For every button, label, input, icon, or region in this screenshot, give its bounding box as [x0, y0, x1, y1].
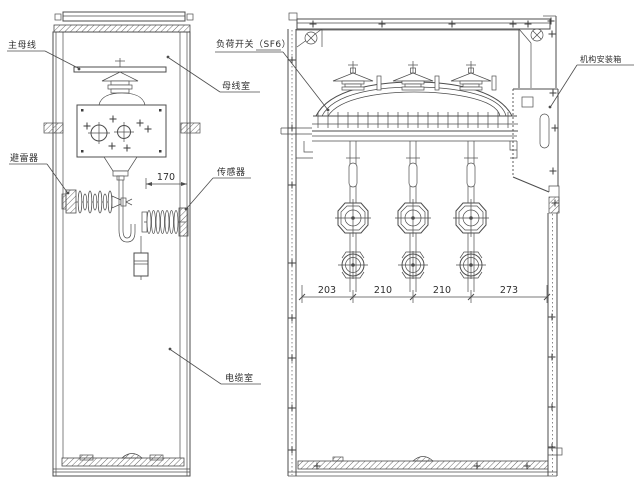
cabinet-base: [53, 454, 190, 473]
load-switch-text: 负荷开关（SF6）: [216, 38, 291, 50]
cable-terminations: [335, 141, 489, 292]
top-left-bracket: [297, 29, 322, 47]
sensor-coil: [142, 208, 188, 236]
connecting-pipe: [119, 176, 141, 253]
dimension-line: 203 210 210 273: [299, 285, 550, 303]
label-mechanism-box: 机构安装箱: [549, 54, 634, 108]
termination-phase-b: [395, 141, 431, 292]
fuse-box: [134, 253, 148, 280]
label-sensor: 传感器: [185, 166, 251, 210]
funnel: [104, 157, 137, 180]
busbar: [74, 67, 166, 72]
label-load-switch: 负荷开关（SF6）: [215, 38, 329, 111]
bushing-phase-a: [333, 61, 373, 90]
mechanism-mounting-plate: [513, 89, 559, 213]
busbar-compartment-text: 母线室: [222, 80, 251, 92]
mechanism-box: [77, 105, 166, 157]
cable-gland-bump: [122, 454, 142, 459]
cable-gland-bump: [413, 457, 433, 462]
arrester-text: 避雷器: [10, 152, 39, 164]
label-busbar-compartment: 母线室: [167, 56, 260, 92]
side-view: 170: [44, 12, 200, 476]
front-view: 203 210 210 273: [281, 13, 562, 476]
dim-203-text: 203: [318, 285, 336, 296]
top-cover: [54, 12, 193, 32]
dim-210-text: 210: [374, 285, 392, 296]
switchgear-drawing-canvas: 170: [0, 0, 640, 481]
wall-mounting-tab: [44, 123, 63, 133]
cabinet-base: [288, 457, 557, 477]
slot-hole: [540, 114, 549, 148]
bushings: [333, 61, 496, 90]
sf6-tank: [281, 82, 518, 158]
technical-drawing: 170: [0, 0, 640, 481]
dim-210b-text: 210: [433, 285, 451, 296]
termination-phase-c: [453, 141, 489, 292]
square-hole: [522, 97, 533, 107]
label-arrester: 避雷器: [9, 152, 69, 194]
switch-bell-housing: [99, 93, 145, 105]
main-busbar-text: 主母线: [8, 39, 37, 51]
dim-273-text: 273: [500, 285, 518, 296]
mechanism-box-text: 机构安装箱: [580, 54, 622, 64]
right-wall: [548, 213, 562, 476]
label-cable-compartment: 电缆室: [169, 348, 261, 384]
lightning-arrester: [62, 190, 132, 213]
label-main-busbar: 主母线: [7, 39, 80, 70]
sensor-text: 传感器: [217, 166, 246, 178]
post-insulator: [99, 58, 145, 105]
cable-compartment-text: 电缆室: [225, 372, 254, 384]
wall-mounting-tab: [181, 123, 200, 133]
dim-170: 170: [146, 172, 187, 189]
termination-phase-a: [335, 141, 371, 292]
top-cover: [289, 13, 550, 29]
tank-left-support: [281, 128, 313, 158]
dim-170-text: 170: [157, 172, 175, 183]
tank-right-support: [510, 141, 517, 158]
